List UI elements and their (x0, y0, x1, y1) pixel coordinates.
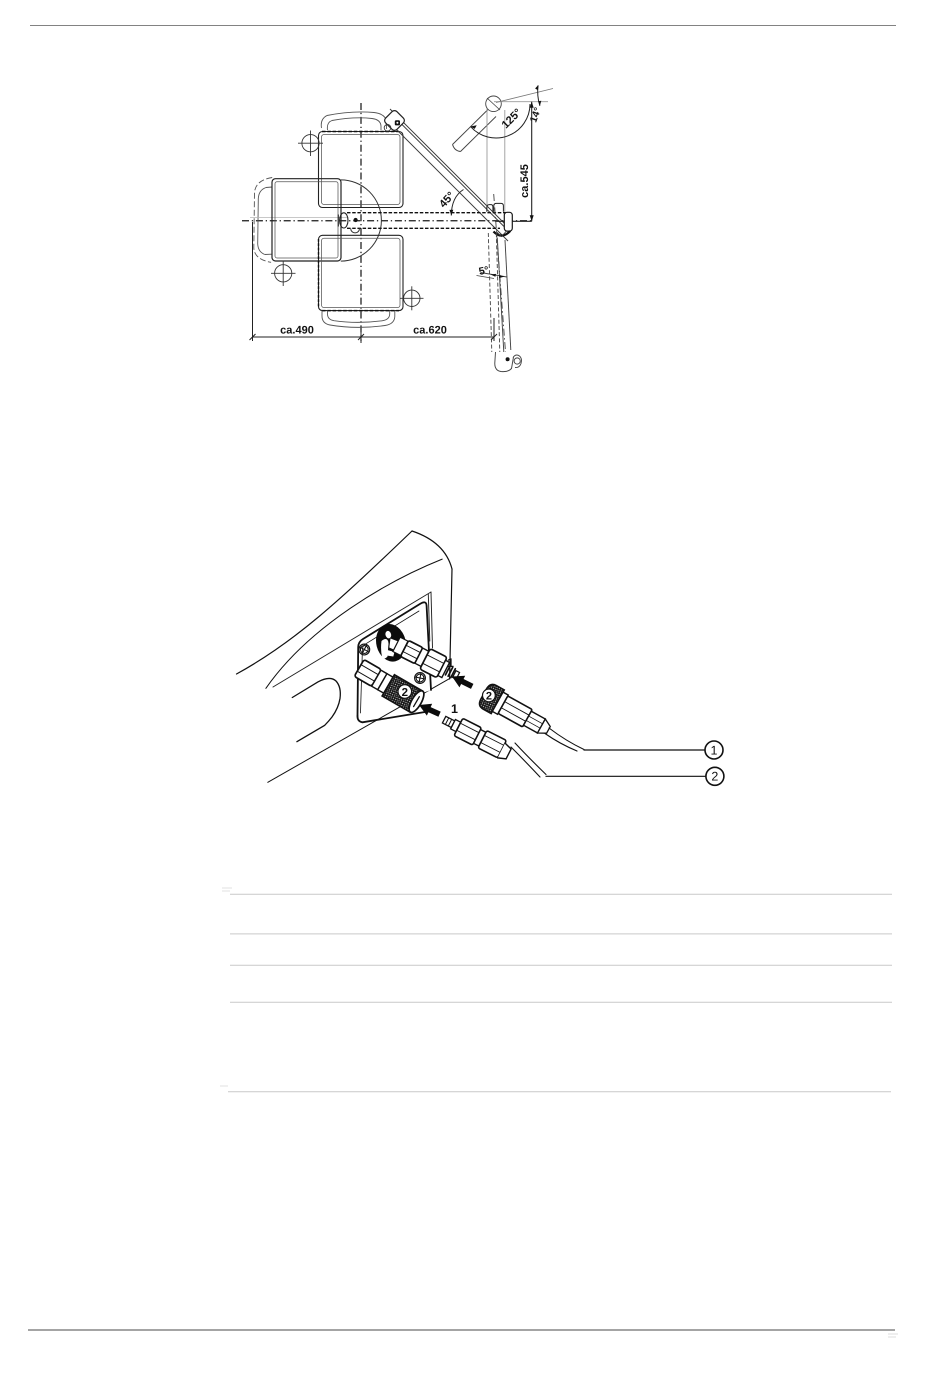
svg-text:ca.490: ca.490 (280, 325, 314, 337)
svg-text:14°: 14° (528, 106, 544, 124)
svg-text:ca.620: ca.620 (413, 325, 447, 337)
svg-text:1: 1 (451, 702, 458, 716)
svg-text:45°: 45° (437, 190, 457, 210)
svg-text:1: 1 (711, 743, 718, 757)
svg-text:2: 2 (402, 687, 408, 699)
svg-text:2: 2 (486, 691, 492, 703)
svg-text:2: 2 (711, 770, 718, 784)
svg-text:ca.545: ca.545 (519, 164, 531, 198)
svg-text:1: 1 (447, 656, 454, 670)
